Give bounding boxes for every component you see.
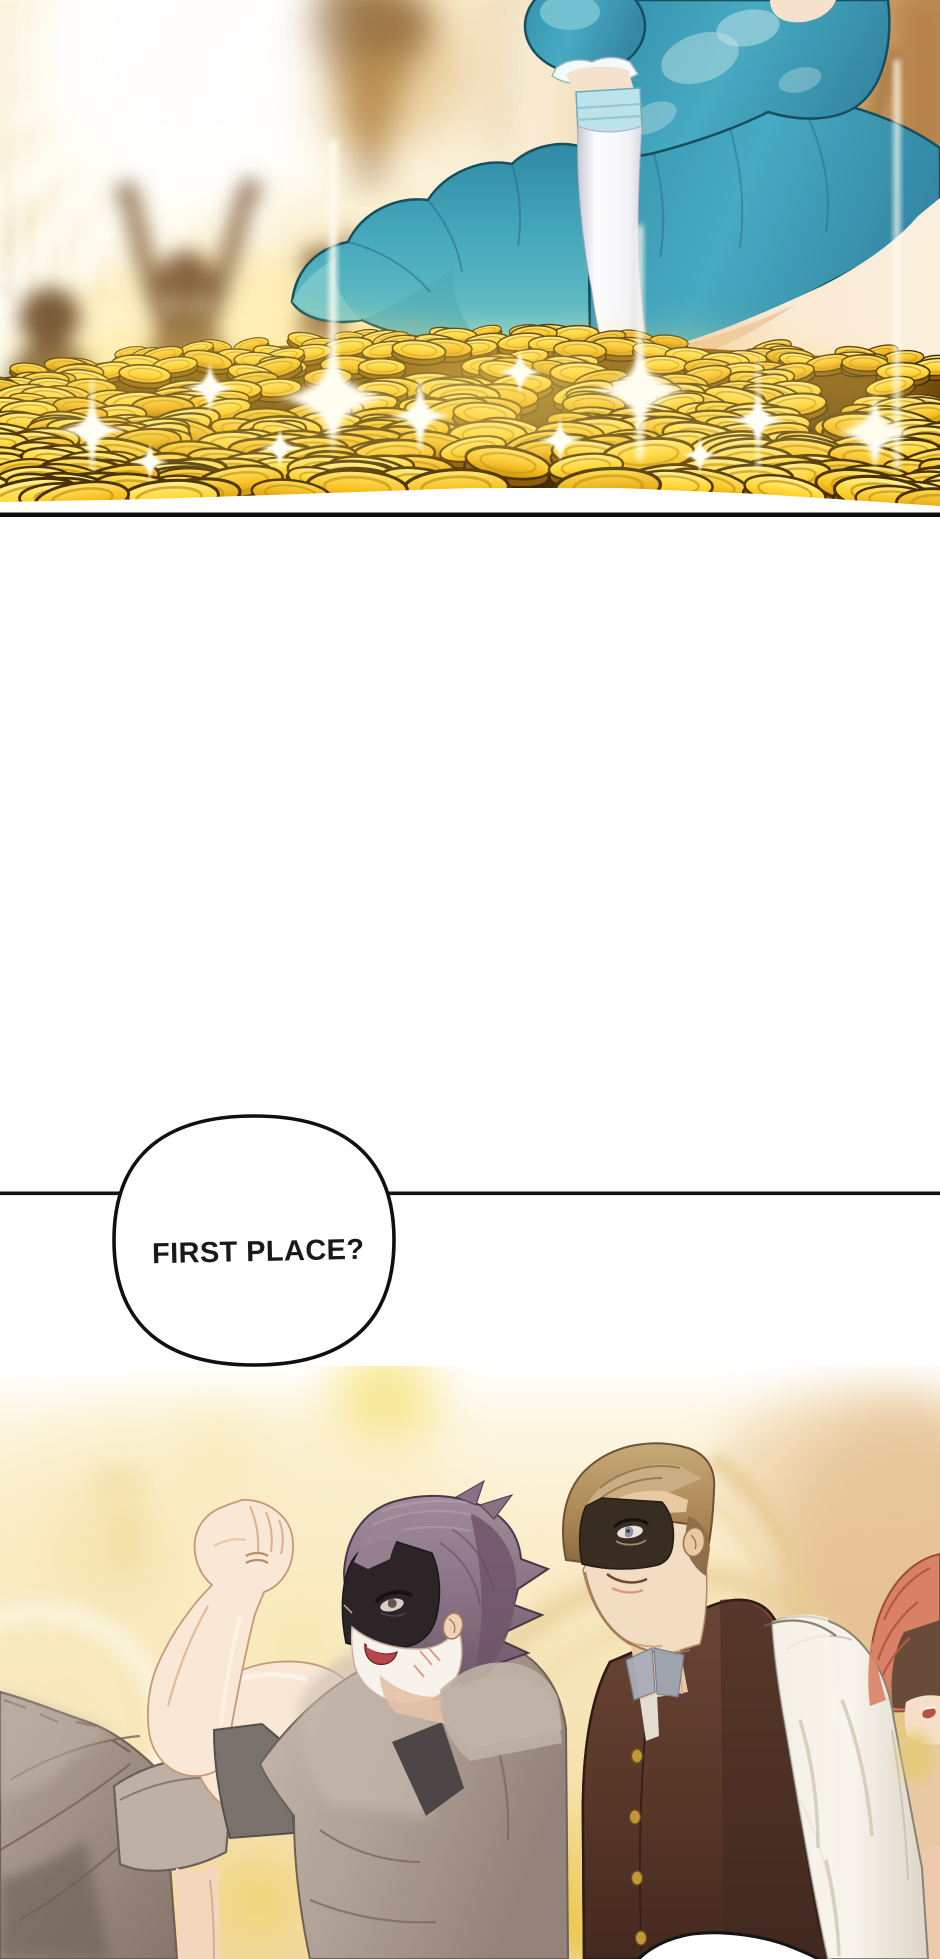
svg-text:FIRST PLACE?: FIRST PLACE? [152, 1234, 365, 1270]
